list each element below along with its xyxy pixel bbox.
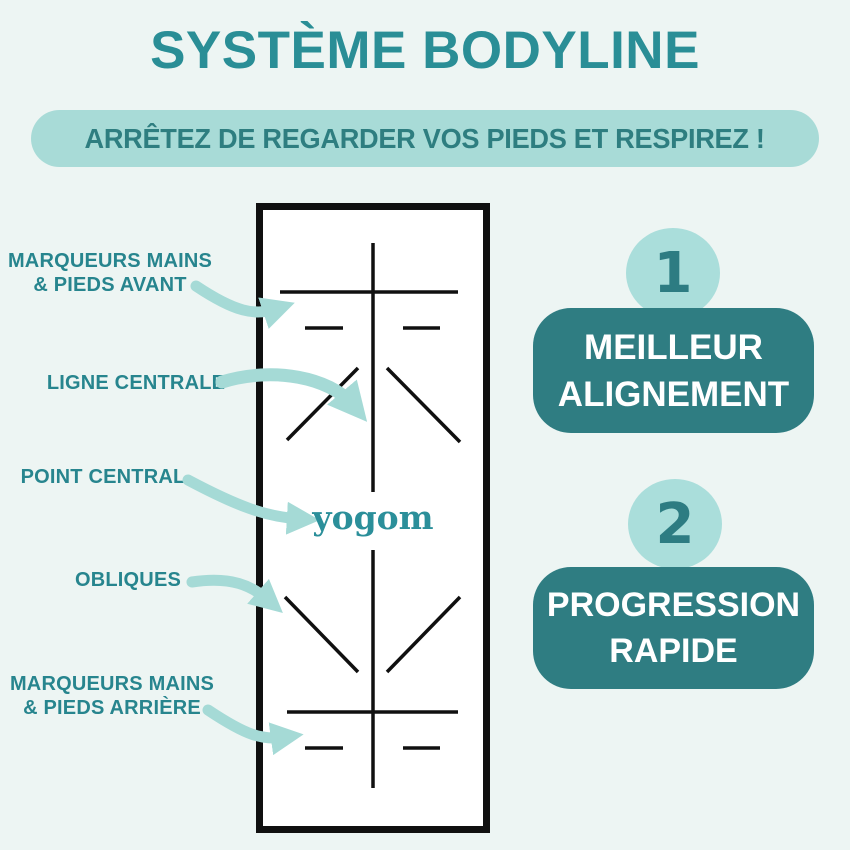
label-line: LIGNE CENTRALE — [31, 371, 241, 395]
benefit-1-number-circle: 1 — [626, 228, 720, 318]
label-point-central: POINT CENTRAL — [0, 465, 206, 489]
benefit-1-line: ALIGNEMENT — [558, 371, 789, 418]
label-ligne-centrale: LIGNE CENTRALE — [31, 371, 241, 395]
tagline-banner: ARRÊTEZ DE REGARDER VOS PIEDS ET RESPIRE… — [31, 110, 819, 167]
benefit-2-number-circle: 2 — [628, 479, 722, 569]
tagline-text: ARRÊTEZ DE REGARDER VOS PIEDS ET RESPIRE… — [85, 123, 765, 155]
benefit-1-line: MEILLEUR — [584, 324, 763, 371]
label-line: MARQUEURS MAINS — [7, 672, 217, 696]
yogom-logo: yogom — [303, 498, 443, 537]
benefit-2-line: PROGRESSION — [547, 582, 800, 628]
label-line: & PIEDS AVANT — [5, 273, 215, 297]
label-line: & PIEDS ARRIÈRE — [7, 696, 217, 720]
label-line: OBLIQUES — [23, 568, 233, 592]
benefit-2-number: 2 — [656, 492, 695, 557]
label-obliques: OBLIQUES — [23, 568, 233, 592]
page-title: SYSTÈME BODYLINE — [0, 20, 850, 81]
benefit-1-badge: MEILLEUR ALIGNEMENT — [533, 308, 814, 433]
benefit-2-badge: PROGRESSION RAPIDE — [533, 567, 814, 689]
label-marqueurs-mains-pieds-avant: MARQUEURS MAINS & PIEDS AVANT — [5, 249, 215, 297]
label-marqueurs-mains-pieds-arriere: MARQUEURS MAINS & PIEDS ARRIÈRE — [7, 672, 217, 720]
label-line: MARQUEURS MAINS — [5, 249, 215, 273]
benefit-1-number: 1 — [654, 241, 693, 306]
label-line: POINT CENTRAL — [0, 465, 206, 489]
benefit-2-line: RAPIDE — [609, 628, 737, 674]
